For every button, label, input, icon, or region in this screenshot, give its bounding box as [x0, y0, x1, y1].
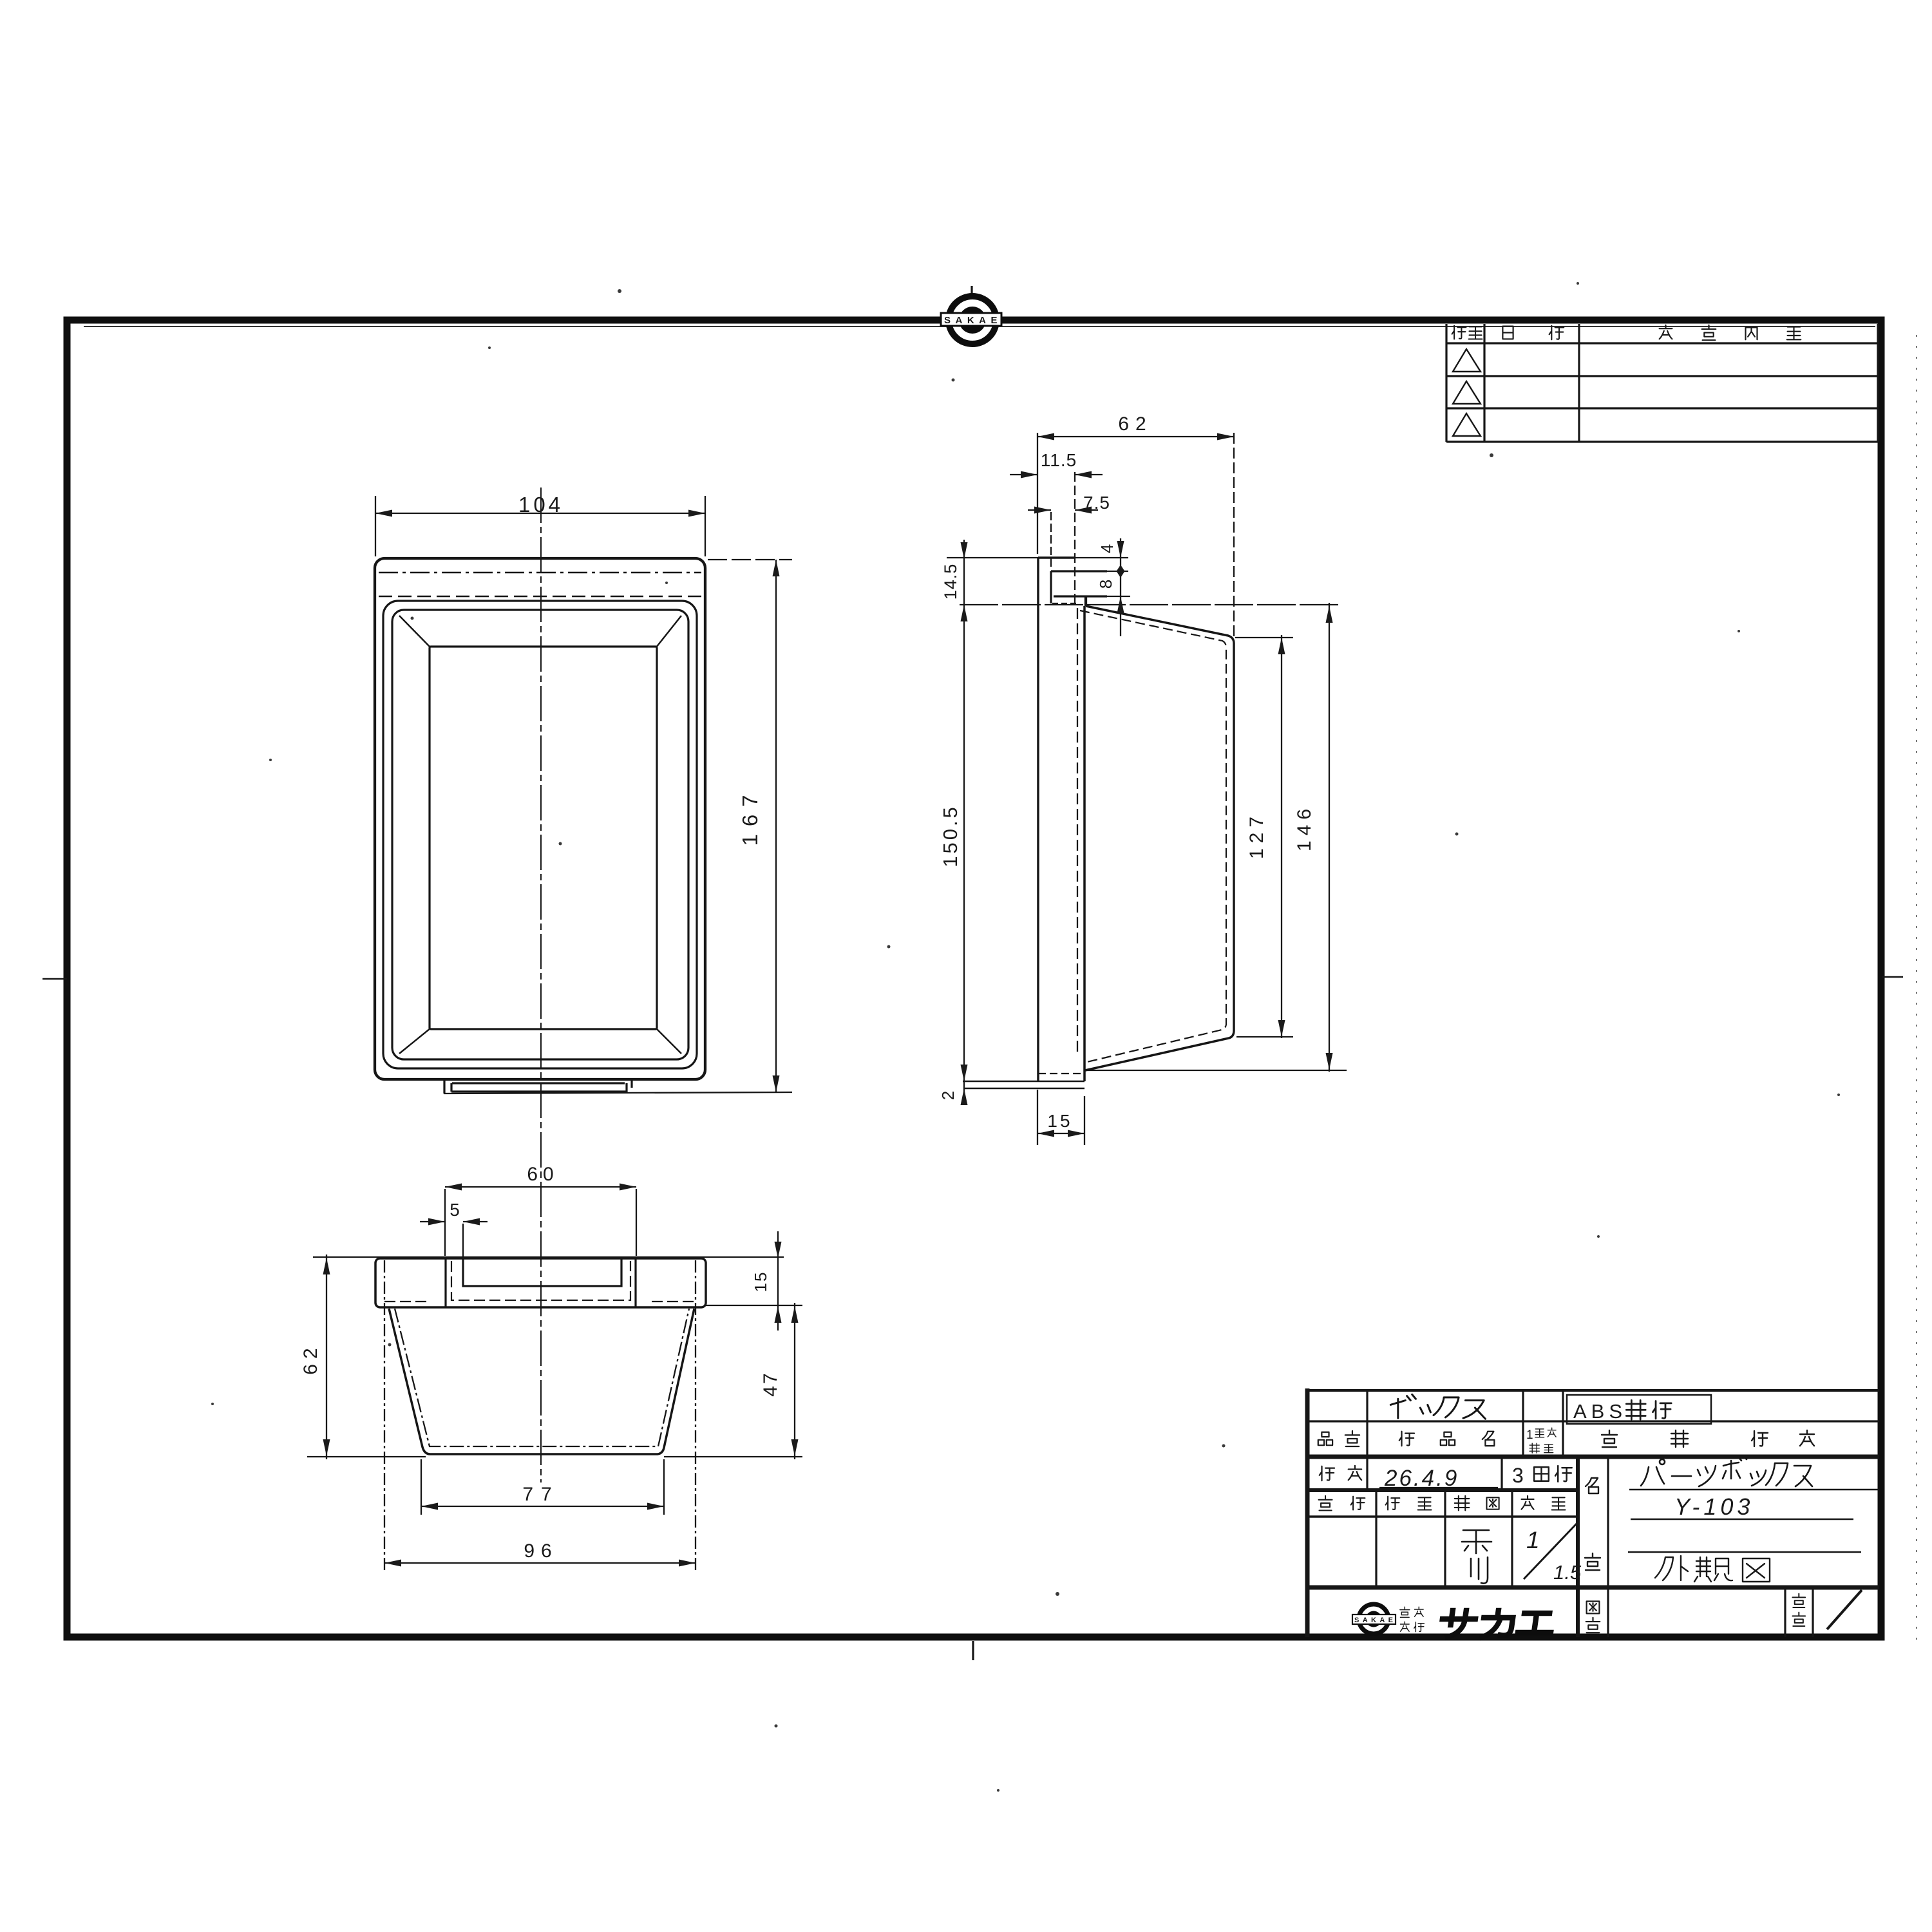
svg-text:11.5: 11.5 [1041, 450, 1077, 470]
svg-text:62: 62 [300, 1343, 321, 1374]
svg-text:Y-103: Y-103 [1674, 1493, 1754, 1520]
svg-text:14.5: 14.5 [941, 563, 960, 600]
svg-text:15: 15 [1047, 1111, 1072, 1131]
svg-text:2: 2 [938, 1091, 958, 1100]
svg-text:60: 60 [527, 1164, 558, 1185]
svg-text:127: 127 [1246, 811, 1267, 859]
svg-text:5: 5 [450, 1200, 460, 1220]
svg-text:3: 3 [1512, 1464, 1524, 1487]
svg-text:1: 1 [1526, 1527, 1540, 1553]
svg-text:167: 167 [738, 787, 762, 846]
svg-text:ABS: ABS [1573, 1400, 1627, 1423]
svg-text:1.5: 1.5 [1553, 1561, 1582, 1584]
svg-text:1: 1 [1526, 1428, 1533, 1442]
svg-text:77: 77 [522, 1484, 559, 1505]
svg-text:15: 15 [751, 1271, 770, 1293]
svg-text:4: 4 [1097, 544, 1117, 553]
svg-text:104: 104 [518, 493, 563, 516]
svg-text:7.5: 7.5 [1083, 493, 1110, 513]
svg-text:62: 62 [1118, 413, 1152, 435]
svg-text:8: 8 [1096, 580, 1115, 589]
svg-text:47: 47 [760, 1371, 781, 1396]
svg-text:150.5: 150.5 [939, 804, 961, 867]
svg-text:146: 146 [1294, 804, 1315, 851]
svg-text:96: 96 [524, 1540, 558, 1562]
